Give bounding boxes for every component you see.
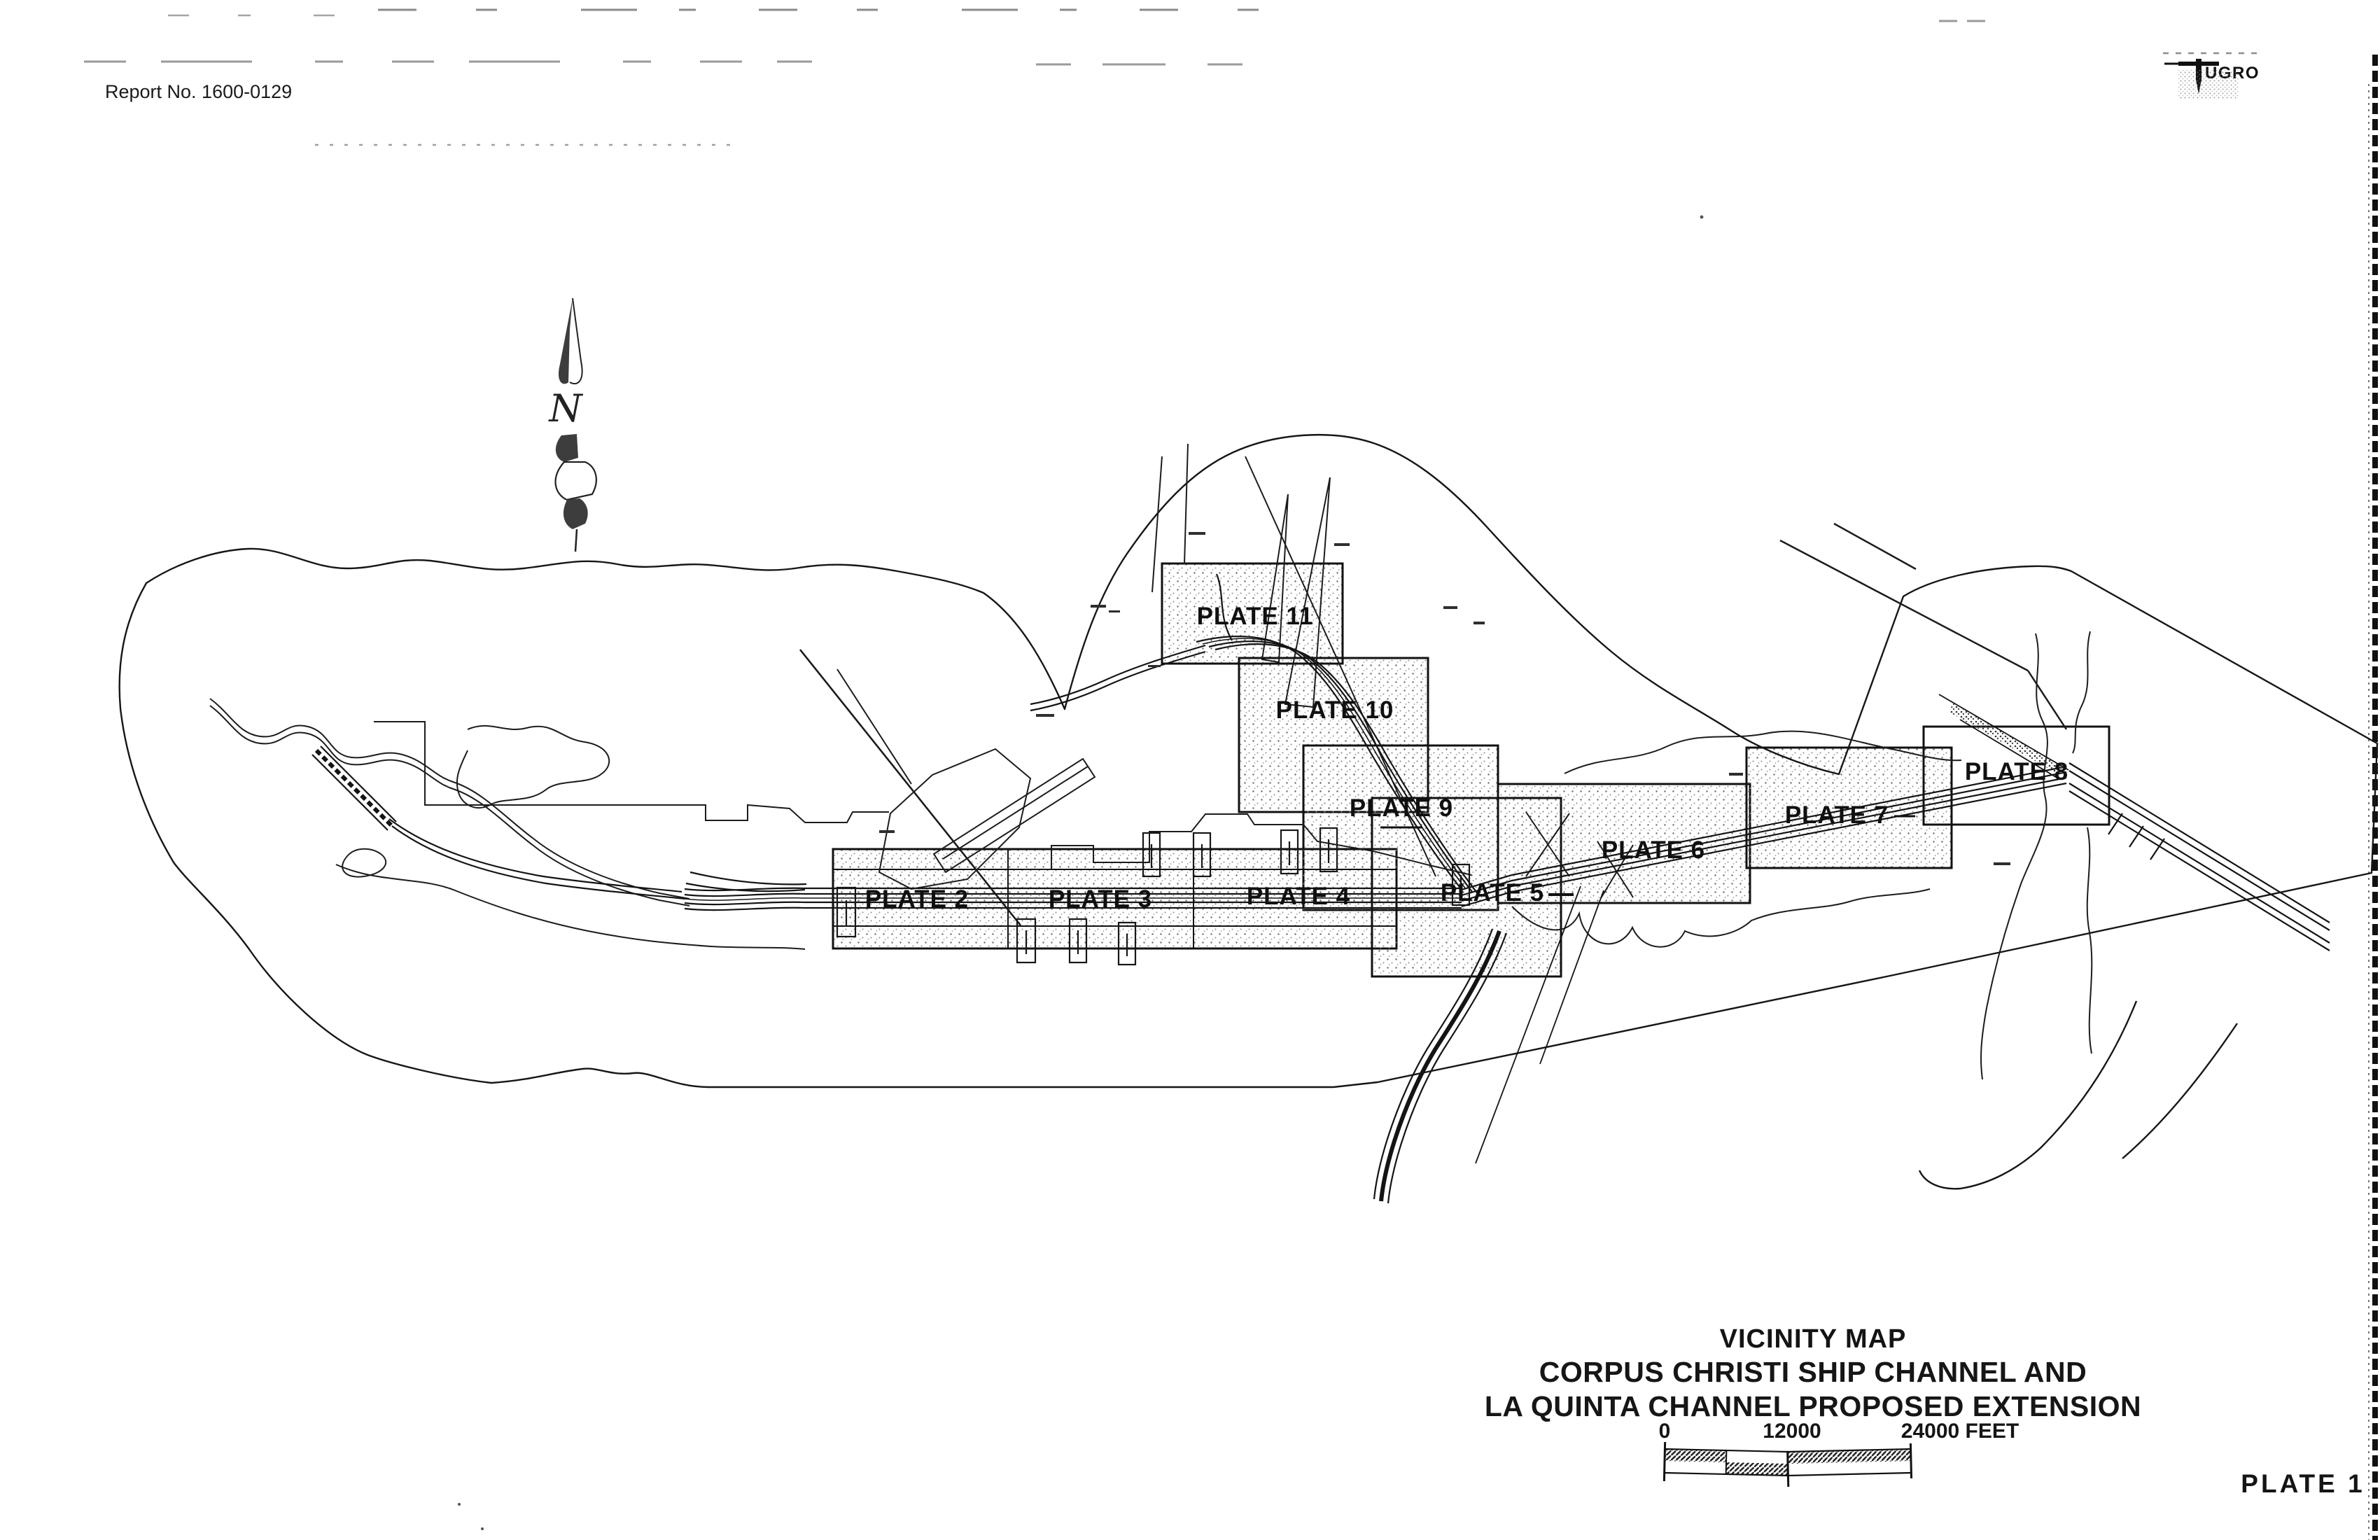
north-arrow-blade-dark: [559, 298, 573, 384]
title-block: VICINITY MAP CORPUS CHRISTI SHIP CHANNEL…: [1485, 1324, 2141, 1422]
fugro-logo: UGRO: [2164, 59, 2260, 99]
scale-bar-left-half: [1664, 1442, 1788, 1484]
micro-note: [1189, 532, 1205, 535]
micro-note: [1036, 714, 1054, 717]
plate-number-footer: PLATE 1: [2241, 1469, 2365, 1498]
north-arrow-stem: [575, 529, 577, 552]
micro-note: [1994, 862, 2010, 865]
harbor-island-creek: [1981, 633, 2047, 1079]
railroad-line: [1780, 524, 2066, 729]
report-number: Report No. 1600-0129: [105, 81, 292, 102]
plate-3-label: PLATE 3: [1049, 885, 1152, 913]
scan-speck: [1700, 216, 1704, 219]
micro-note: [1443, 606, 1457, 609]
scale-tick-0: 0: [1659, 1420, 1671, 1443]
scale-tick-24000: 24000 FEET: [1901, 1420, 2019, 1443]
micro-note: [1729, 773, 1743, 776]
scale-tick-12000: 12000: [1763, 1420, 1821, 1443]
plate-9-label: PLATE 9: [1350, 794, 1453, 822]
north-arrow-ribbon-bottom: [563, 498, 588, 529]
plate-8-label: PLATE 8: [1965, 758, 2068, 785]
channel-line: [2069, 763, 2330, 923]
scale-bar: 0 12000 24000 FEET: [1659, 1420, 2019, 1487]
scan-speck: [458, 1503, 461, 1506]
north-arrow-blade-outline: [570, 298, 582, 384]
micro-note: [1091, 605, 1106, 608]
harbor-island-creek: [2073, 631, 2090, 753]
channel-line: [2069, 783, 2330, 943]
plate-rectangles: [833, 563, 2109, 976]
channel-line: [2069, 791, 2330, 951]
plate-7-label: PLATE 7: [1785, 801, 1889, 829]
gulf-shoreline: [2122, 1023, 2237, 1158]
plate-6-label: PLATE 6: [1602, 836, 1705, 864]
map-subtitle-line2: LA QUINTA CHANNEL PROPOSED EXTENSION: [1485, 1390, 2141, 1422]
plate-5-label: PLATE 5: [1441, 879, 1544, 906]
plate-4-label: PLATE 4: [1247, 883, 1350, 910]
micro-note: [1334, 543, 1350, 546]
north-arrow-letter: N: [547, 386, 583, 430]
north-arrow: N: [547, 298, 596, 552]
map-subtitle-line1: CORPUS CHRISTI SHIP CHANNEL AND: [1539, 1356, 2087, 1388]
micro-note: [1473, 622, 1485, 624]
micro-note: [1148, 665, 1161, 667]
harbor-island-creek: [2087, 827, 2092, 1053]
micro-note: [879, 830, 895, 833]
scale-bar-right-half: [1787, 1443, 1911, 1487]
south-shore: [336, 864, 805, 949]
channel-line: [2069, 771, 2330, 930]
nueces-river: [210, 699, 689, 899]
plate-2-label: PLATE 2: [865, 885, 969, 913]
survey-limit-lines: [374, 722, 889, 822]
north-arrow-ribbon-top: [556, 434, 578, 462]
dredged-channel-hatch: [316, 750, 392, 826]
plate-10-label: PLATE 10: [1276, 696, 1394, 724]
north-arrow-ribbon-mid: [556, 462, 596, 500]
fugro-logo-dither: [2178, 70, 2239, 99]
micro-note: [1109, 610, 1120, 612]
vicinity-map-canvas: PLATE 2 PLATE 3 PLATE 4 PLATE 5 PLATE 6 …: [0, 0, 2380, 1540]
gulf-shoreline: [1919, 1001, 2136, 1189]
scan-speck: [481, 1527, 484, 1530]
scanned-report-page: PLATE 2 PLATE 3 PLATE 4 PLATE 5 PLATE 6 …: [0, 0, 2380, 1540]
plate-11-label: PLATE 11: [1197, 603, 1314, 630]
map-title: VICINITY MAP: [1720, 1324, 1907, 1354]
leader-line: [837, 669, 911, 784]
pond-outline: [342, 849, 386, 877]
